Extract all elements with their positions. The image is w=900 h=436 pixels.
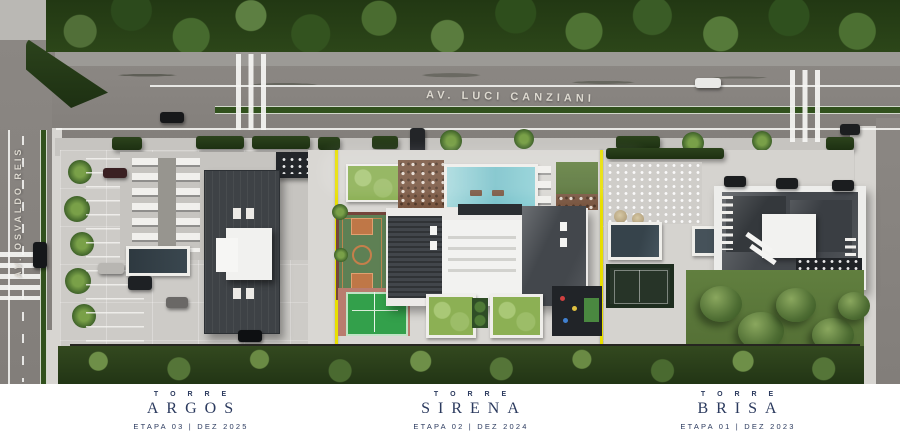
watermark [320,148,650,196]
tower-stage: ETAPA 01 | DEZ 2023 [632,422,842,431]
rooftop-garden [426,294,476,338]
rooftop-unit [233,288,241,299]
car [840,124,860,135]
hedge-box [826,137,854,150]
tower-name: ARGOS [85,400,295,418]
tree [776,288,816,322]
car [724,176,746,187]
palm-tree [752,131,772,151]
play-lawn [584,298,599,322]
court-center-circle [352,245,372,265]
car [103,168,127,178]
tower-label-sirena: T O R R E SIRENA ETAPA 02 | DEZ 2024 [365,391,575,431]
play-equipment [572,306,577,311]
tower-name: BRISA [632,400,842,418]
parked-car-row [176,158,200,252]
car [776,178,798,189]
tennis-service-line [352,310,398,311]
palm-tree [334,248,348,262]
car [166,297,188,308]
tower-stage: ETAPA 03 | DEZ 2025 [85,422,295,431]
tennis-lines [614,270,668,304]
hedge-box [252,136,310,149]
van [128,276,152,290]
car [695,78,721,88]
car [160,112,184,123]
hedge-box [112,137,142,150]
argos-penthouse-wing [216,238,238,272]
tree [700,286,742,322]
perimeter-hedge [58,346,864,384]
lap-pool [126,246,190,276]
car [33,242,47,268]
rooftop-unit [246,208,254,219]
tennis-net-line [374,292,375,332]
rooftop-unit [430,241,437,250]
palm-tree [332,204,348,220]
planter-bed [472,298,488,328]
tower-label-argos: T O R R E ARGOS ETAPA 03 | DEZ 2025 [85,391,295,431]
tower-kicker: T O R R E [365,391,575,398]
side-street-right [876,118,900,386]
car [238,330,262,342]
car [98,263,124,274]
site-plan: AV. LUCI CANZIANI AV. OSVALDO REIS [0,0,900,436]
tree [838,292,870,320]
play-equipment [563,318,568,323]
play-equipment [560,296,565,301]
rooftop-unit [560,222,567,231]
parking-aisle [158,158,176,252]
tree-canopy [46,0,900,52]
palm-tree [514,129,534,149]
rooftop-unit [560,238,567,247]
parked-car-row [132,158,158,252]
lane-line-lower [56,128,900,130]
skylights [448,236,516,278]
tower-stage: ETAPA 02 | DEZ 2024 [365,422,575,431]
street-name-vertical: AV. OSVALDO REIS [13,148,23,278]
rooftop-garden [490,294,543,338]
tower-name: SIRENA [365,400,575,418]
reflecting-pool [608,222,662,260]
tennis-net-line [639,270,640,302]
tower-label-brisa: T O R R E BRISA ETAPA 01 | DEZ 2023 [632,391,842,431]
tower-kicker: T O R R E [632,391,842,398]
court-key-top [351,218,373,235]
pergola [722,196,733,250]
tower-kicker: T O R R E [85,391,295,398]
crosswalk-left [236,54,272,130]
hedge-box [606,148,724,159]
car [832,180,854,191]
hedge-box [196,136,244,149]
rooftop-unit [233,208,241,219]
rooftop-unit [246,288,254,299]
aerial-render: AV. LUCI CANZIANI AV. OSVALDO REIS [0,0,900,386]
rooftop-unit [430,226,437,235]
entrance-canopy [458,204,522,215]
crosswalk-right [790,70,824,142]
